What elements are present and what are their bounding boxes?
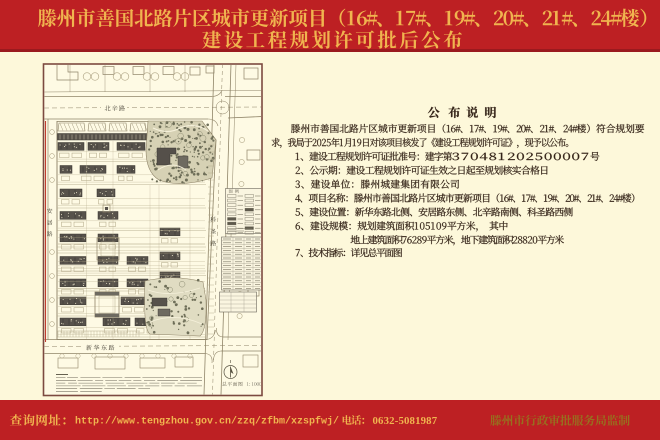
- svg-text:0632-5081987: 0632-5081987: [373, 415, 438, 427]
- svg-text:http://www.tengzhou.gov.cn/zzq: http://www.tengzhou.gov.cn/zzq/zfbm/xzsp…: [75, 416, 339, 428]
